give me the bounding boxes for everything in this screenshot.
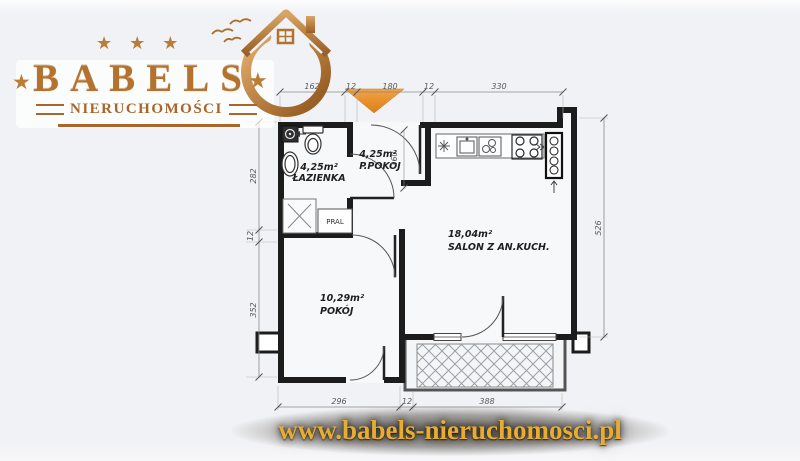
shower-icon [283,199,316,233]
pillar-left [257,333,281,352]
dim-top-2: 180 [382,82,397,91]
birds-icon [212,19,251,42]
salon-name-label: SALON Z AN.KUCH. [448,242,550,253]
dim-right: 526 [594,220,603,235]
brand-subtitle-row: NIERUCHOMOŚCI [36,101,250,118]
salon-area-label: 18,04m² [448,229,493,240]
website-url: www.babels-nieruchomosci.pl [235,415,665,446]
star-icon: ★ [129,34,145,52]
brand-subtitle: NIERUCHOMOŚCI [70,101,223,118]
dim-top-4: 330 [491,82,506,91]
dim-left-1: 12 [246,231,255,241]
room-area-label: 10,29m² [320,293,365,304]
star-icon: ★ [96,34,112,52]
dim-left-0: 282 [249,168,258,183]
balcony-hatch [417,344,553,387]
dim-left-2: 352 [249,302,258,317]
room-name-label: POKÓJ [320,305,354,317]
bathroom-area-label: 4,25m² [299,162,338,173]
fridge-icon [546,133,562,178]
bathroom-name-label: ŁAZIENKA [291,173,345,184]
entrance-arrow-icon [345,89,404,113]
double-rule-icon [229,104,257,115]
brand-name: BABELS [33,56,253,101]
star-icon: ★ [248,70,268,92]
dim-bottom-1: 12 [402,397,412,406]
dim-hall-width: 160 [390,151,399,166]
subtitle-underline [58,124,240,127]
logo-stars-row: ★ ★ ★ [96,34,178,52]
dim-bottom-0: 296 [331,397,346,406]
balcony [405,340,565,390]
washer-label: PRAL [326,218,344,226]
dim-bottom-2: 388 [479,397,494,406]
logo: ★ ★ ★ ★ BABELS ★ NIERUCHOMOŚCI [0,0,350,140]
star-icon: ★ [12,72,31,93]
star-icon: ★ [162,34,178,52]
window-icon [278,30,293,43]
chimney-icon [306,16,315,33]
double-rule-icon [36,104,64,115]
washer-box: PRAL [318,209,352,233]
dim-top-3: 12 [424,82,434,91]
flyer-canvas: PRAL [0,0,800,461]
